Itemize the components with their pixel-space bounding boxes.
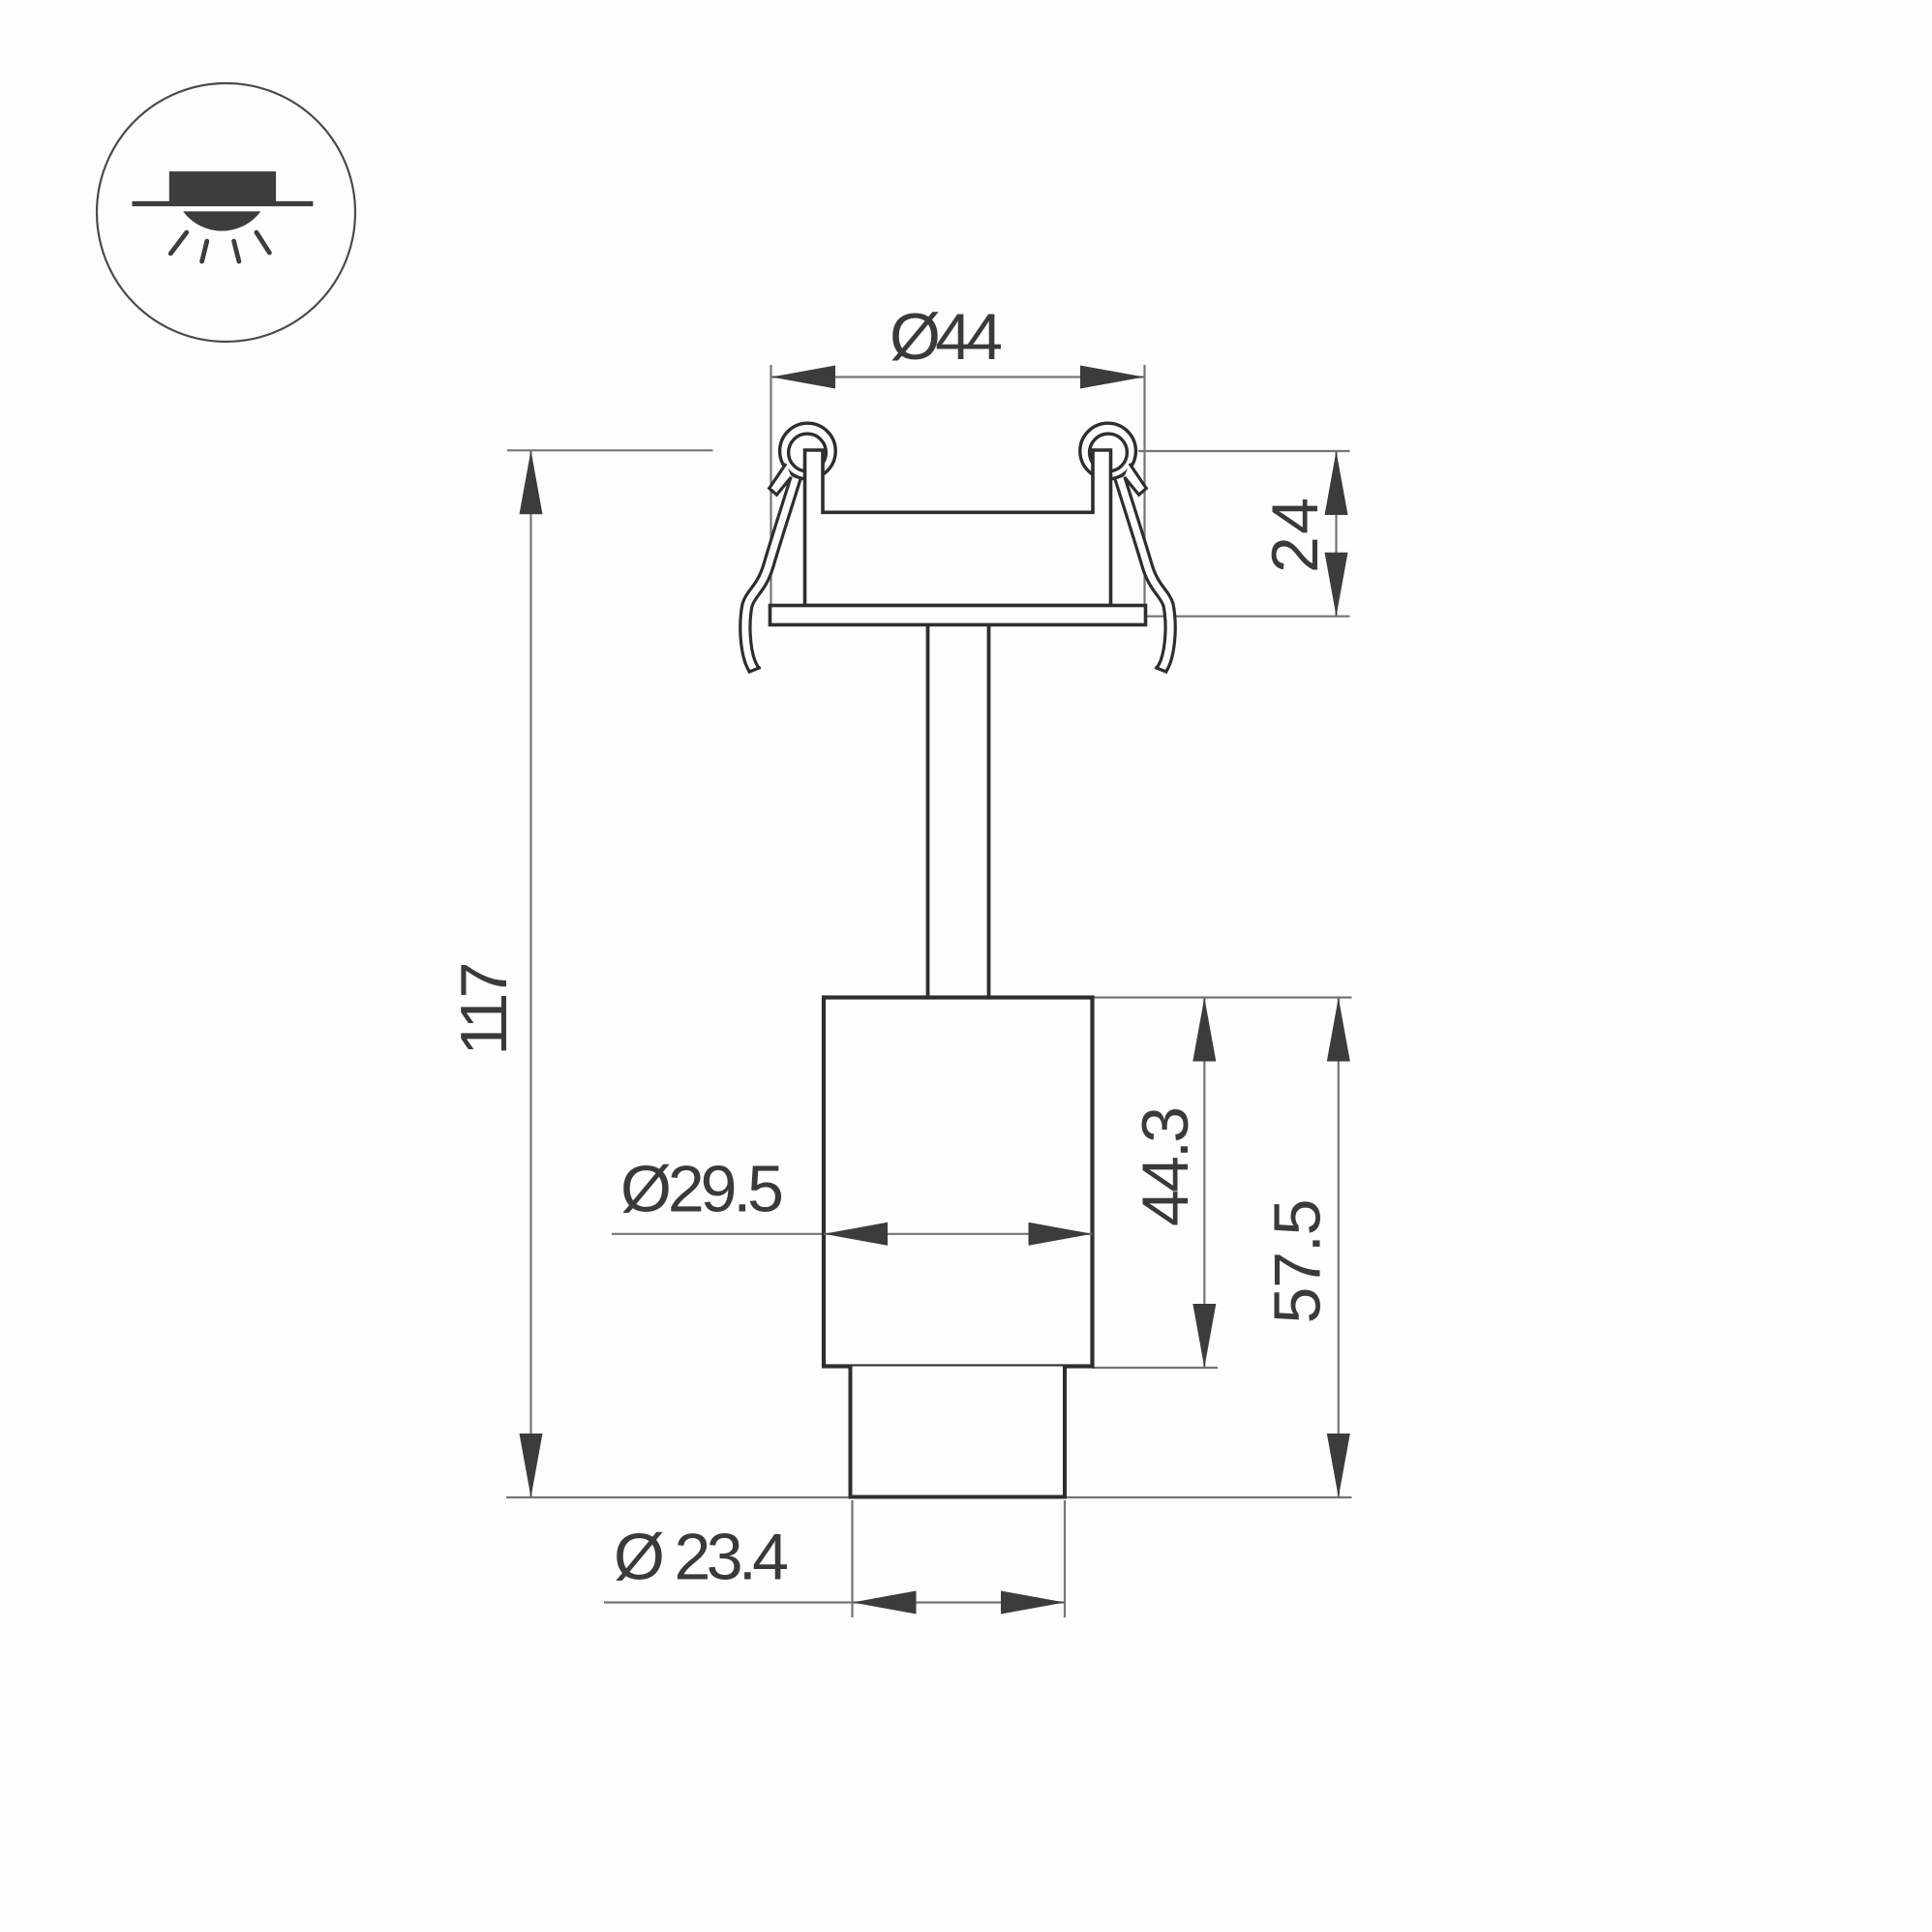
svg-text:Ø44: Ø44 — [890, 300, 1003, 374]
svg-text:44.3: 44.3 — [1129, 1106, 1202, 1226]
svg-text:57.5: 57.5 — [1261, 1199, 1335, 1324]
svg-text:Ø29.5: Ø29.5 — [620, 1153, 784, 1226]
svg-text:Ø 23.4: Ø 23.4 — [614, 1521, 789, 1594]
svg-text:117: 117 — [447, 962, 521, 1056]
